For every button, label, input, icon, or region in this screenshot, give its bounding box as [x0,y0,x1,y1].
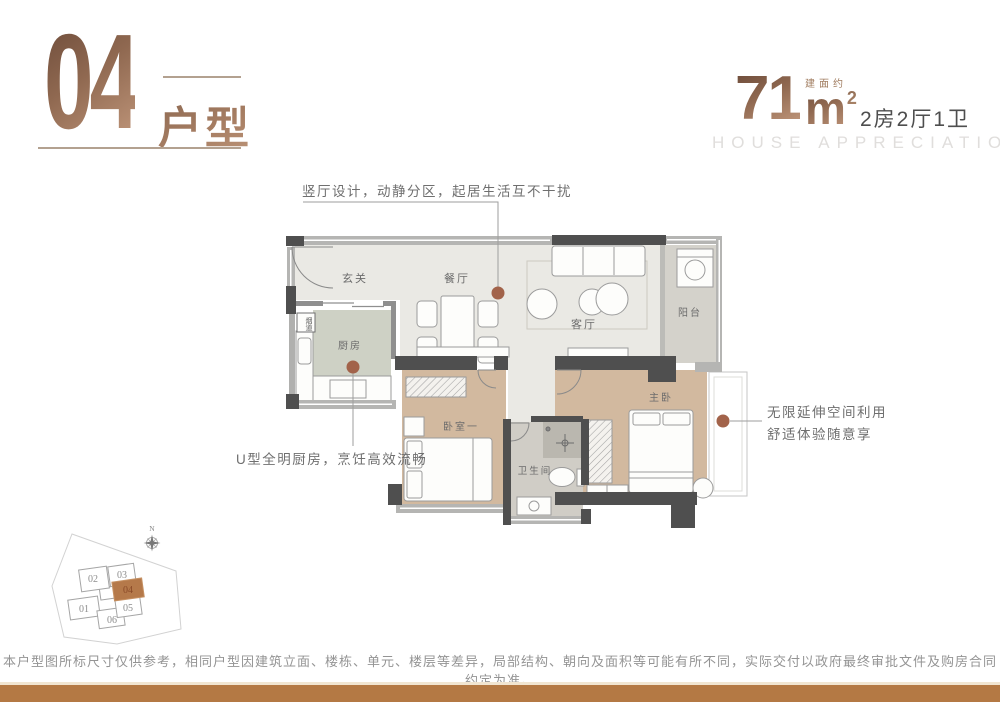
kitchen-top-wall-stub [295,301,323,306]
compass-north-label: N [149,524,155,533]
coffee-table [527,289,557,319]
wall [503,419,511,516]
annotation-dot-kitchen [347,361,360,374]
window-line [511,519,582,521]
room-label-entry: 玄关 [342,271,368,285]
site-label-04: 04 [123,585,133,596]
wall [286,394,299,409]
pillow [407,471,422,498]
wall [671,500,695,528]
annotation-dot-living [492,287,505,300]
annotation-kitchen: U型全明厨房，烹饪高效流畅 [236,448,427,468]
site-label-05: 05 [123,603,133,614]
closet-bedroom1 [406,377,466,397]
window-line [400,508,504,510]
bathroom-sink [517,497,551,515]
washing-machine-icon [677,249,713,287]
wall [555,356,652,370]
wall [648,356,676,382]
wall [503,509,511,525]
room-label-living: 客厅 [571,317,597,331]
kitchen-counter-left [296,331,313,402]
annotation-master: 无限延伸空间利用 舒适体验随意享 [767,402,887,445]
room-label-dining: 餐厅 [444,271,470,285]
annotation-dot-master [717,415,730,428]
annotation-master-line2: 舒适体验随意享 [767,424,887,446]
pillow [663,413,690,425]
balcony-set [677,249,713,287]
site-label-02: 02 [88,574,98,585]
toilet-icon [549,468,575,487]
window-line [288,240,550,242]
wall [581,419,589,485]
pillow [633,413,660,425]
room-label-master: 主卧 [649,391,673,404]
balcony-divider-wall [660,245,665,358]
site-plan: N 01 02 03 04 05 06 [52,524,181,644]
wall [286,236,304,246]
room-label-kitchen: 厨房 [338,339,362,352]
wall [552,235,666,245]
room-label-bathroom: 卫生间 [518,465,553,477]
annotation-living-dining: 竖厅设计，动静分区，起居生活互不干扰 [302,180,572,200]
floorplan-poster: 04 户型 71 建面约 m2 2房2厅1卫 HOUSE APPRECIATIO… [0,0,1000,702]
floor-plan-svg: 玄关 餐厅 客厅 阳台 厨房 卧室一 卫生间 主卧 N [0,0,1000,702]
annotation-master-line1: 无限延伸空间利用 [767,402,887,424]
wall [494,356,508,370]
wall [531,416,583,422]
wall [395,356,477,370]
wall [286,286,296,314]
room-label-flue: 烟道 [299,315,313,332]
wall [388,484,402,505]
kitchen-right-wall [391,301,396,359]
compass-icon: N [144,524,161,552]
wardrobe-master [587,420,612,483]
sofa [552,246,645,276]
window-line [290,250,292,286]
bottom-band-orange [0,685,1000,702]
site-label-01: 01 [79,604,89,615]
dining-chair [417,301,437,327]
room-label-bedroom1: 卧室一 [443,420,479,433]
sideboard [417,347,509,357]
kitchen-left-wall [289,312,295,398]
wall [581,509,591,524]
bay-window [709,372,747,496]
window-line [667,239,720,241]
compass-star [144,535,161,552]
coffee-table [596,283,628,315]
room-label-balcony: 阳台 [678,306,702,319]
site-label-03: 03 [117,570,127,581]
site-label-06: 06 [107,615,117,626]
window-line [292,404,392,406]
balcony-bottom-band [695,362,722,372]
nightstand [404,417,424,436]
dining-chair [478,301,498,327]
window-line [719,240,721,362]
